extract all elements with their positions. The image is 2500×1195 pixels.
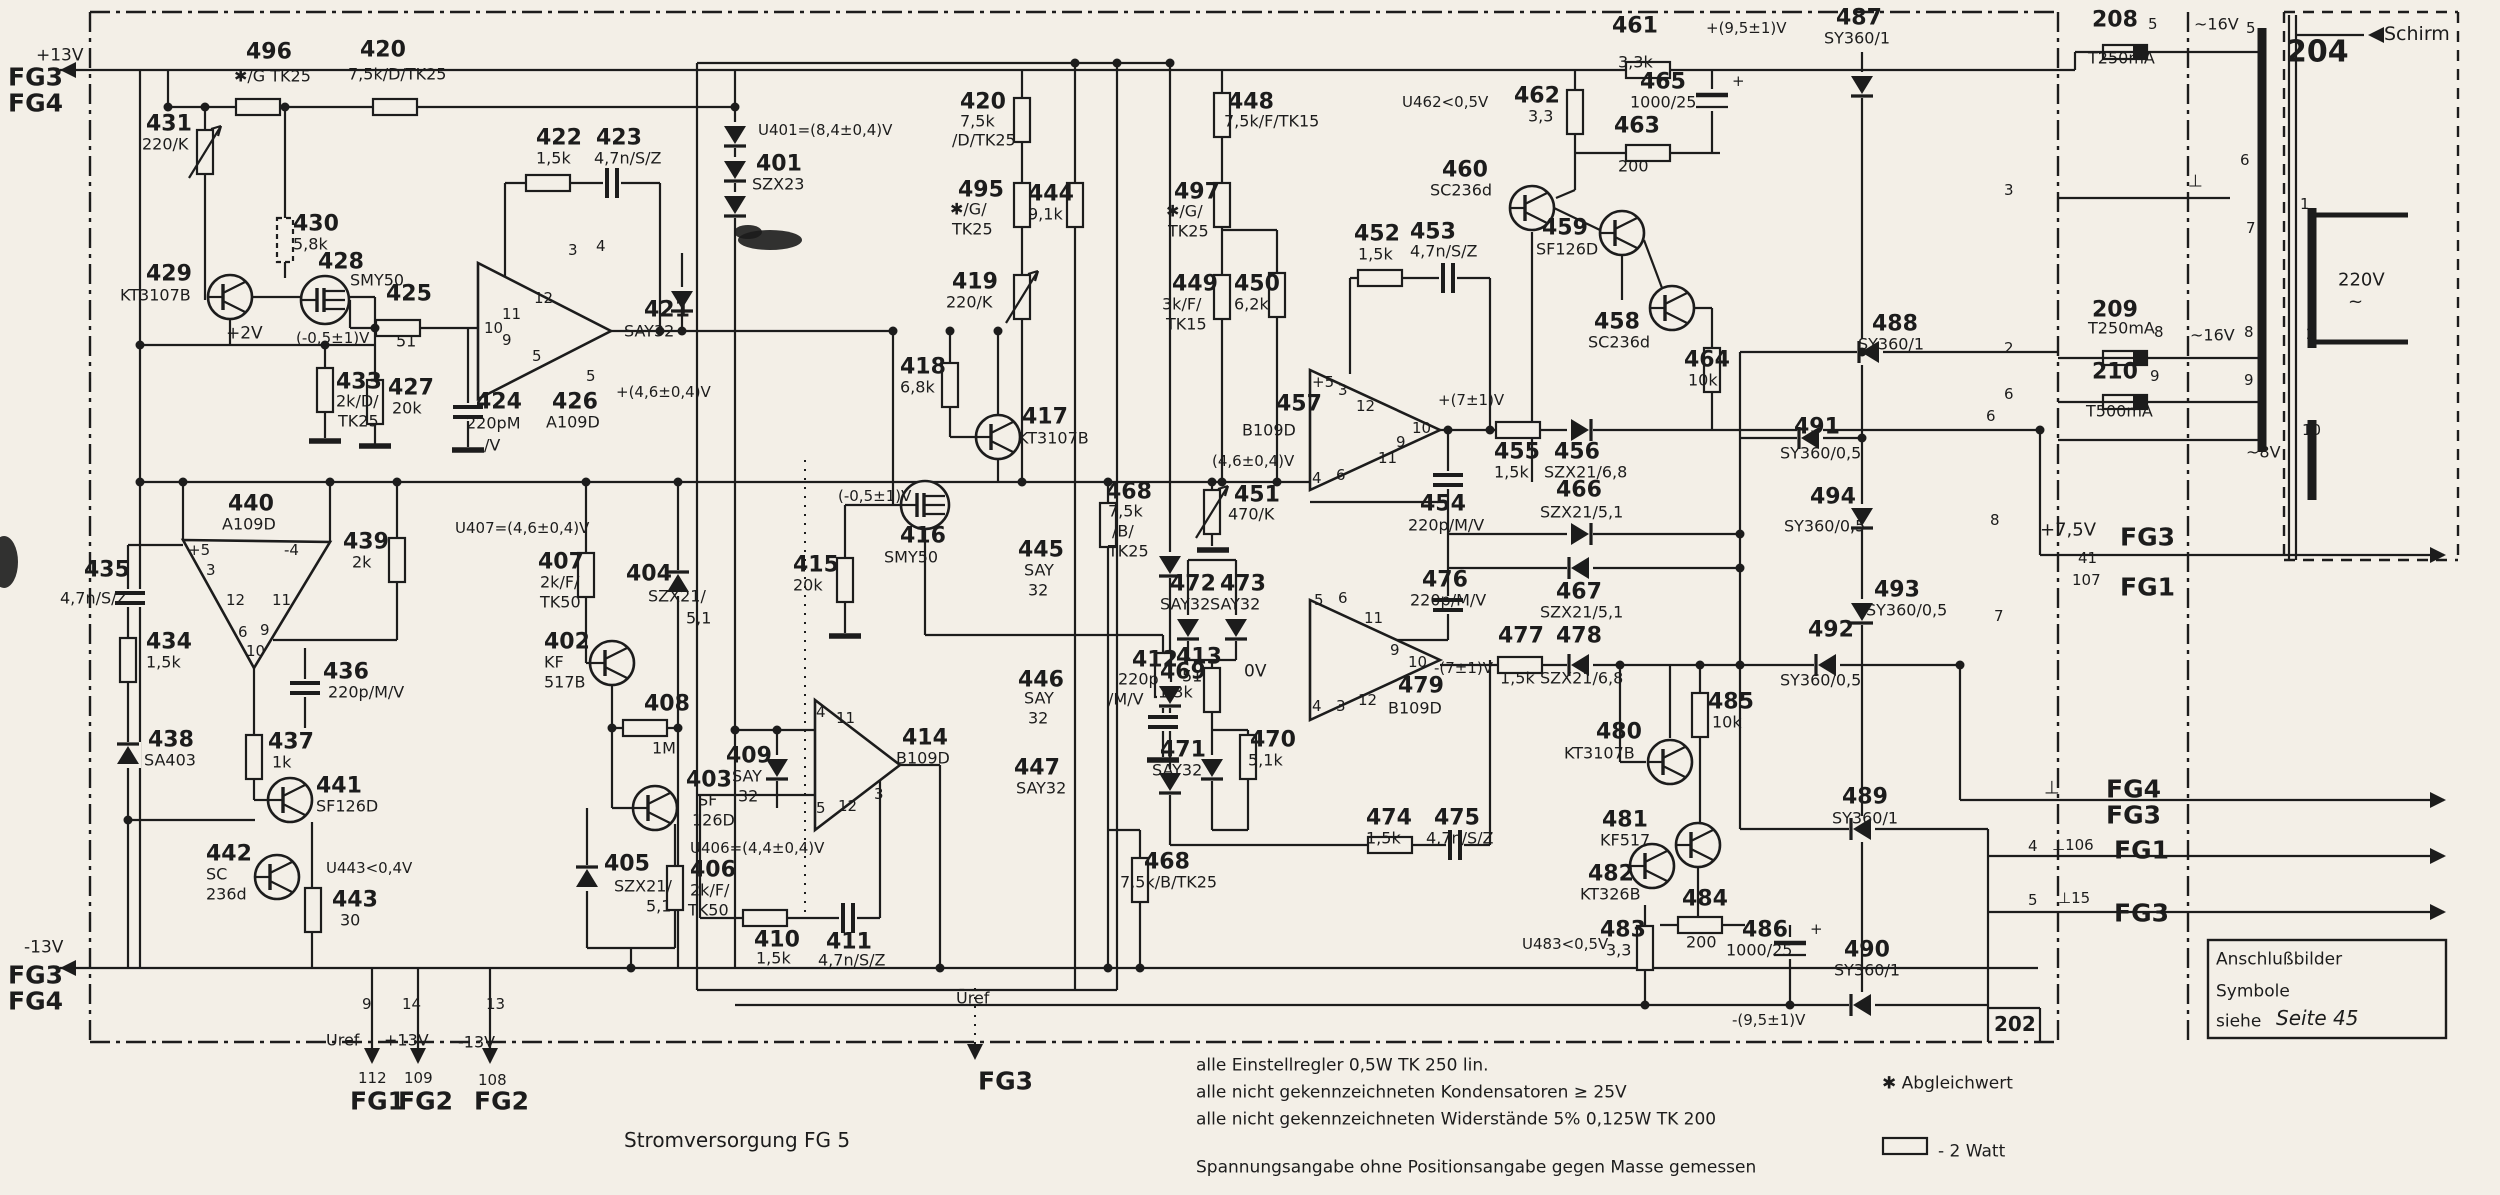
component-label: 404 (626, 562, 672, 587)
component-label: 414 (902, 726, 948, 751)
component-label: SAY (1024, 561, 1054, 580)
component-label: T250mA (2087, 319, 2155, 338)
component-label: 415 (793, 553, 839, 578)
opamp-symbol (815, 700, 900, 830)
junction-dot (1104, 964, 1113, 973)
component-label: 4,7n/S/Z (1426, 829, 1494, 848)
component-label: 4,7n/S/Z (818, 951, 886, 970)
component-label: 20k (392, 399, 422, 418)
component-label: 1,5k (756, 949, 791, 968)
component-label: 51 (396, 332, 416, 351)
component-label: -13V (458, 1033, 495, 1052)
component-label: SY360/1 (1834, 961, 1900, 980)
component-label: 1,5k (1366, 829, 1401, 848)
component-label: 7,5k/D/TK25 (348, 65, 446, 84)
component-label: FG3 (8, 960, 63, 989)
component-label: 200 (1618, 157, 1649, 176)
component-label: SY360/1 (1858, 335, 1924, 354)
resistor-symbol (389, 538, 405, 582)
component-label: 3,3 (1606, 941, 1631, 960)
component-label: 9 (1390, 641, 1400, 659)
component-label: 204 (2286, 35, 2349, 70)
component-label: 200 (1686, 933, 1717, 952)
component-label: KF (544, 653, 564, 672)
component-label: 489 (1842, 785, 1888, 810)
component-label: 424 (476, 390, 522, 415)
component-label: 476 (1422, 568, 1468, 593)
component-label: 10 (1408, 653, 1427, 671)
component-label: 422 (536, 126, 582, 151)
component-label: 107 (2072, 571, 2101, 589)
component-label: 220p/M/V (328, 683, 404, 702)
component-label: 13 (486, 995, 505, 1013)
junction-dot (674, 724, 683, 733)
component-label: 444 (1028, 182, 1074, 207)
component-label: 460 (1442, 158, 1488, 183)
junction-dot (164, 103, 173, 112)
component-label: 463 (1614, 114, 1660, 139)
component-label: -13V (24, 937, 64, 957)
component-label: 2k/D/ (336, 392, 379, 411)
component-label: FG2 (398, 1086, 453, 1115)
component-label: SY360/0,5 (1780, 671, 1861, 690)
junction-dot (1071, 59, 1080, 68)
component-label: KT3107B (120, 286, 191, 305)
component-label: 12 (1358, 691, 1377, 709)
component-label: Seite 45 (2276, 1006, 2359, 1030)
component-label: 417 (1022, 405, 1068, 430)
component-label: 458 (1594, 310, 1640, 335)
component-label: FG3 (8, 62, 63, 91)
component-label: U443<0,4V (326, 859, 413, 877)
component-label: FG4 (8, 986, 63, 1015)
component-label: 7,5k (960, 112, 995, 131)
component-label: 454 (1420, 492, 1466, 517)
component-label: 3 (874, 785, 884, 803)
component-label: FG1 (350, 1086, 405, 1115)
component-label: SF (698, 791, 717, 810)
component-label: 11 (836, 709, 855, 727)
component-label: 457 (1276, 392, 1322, 417)
component-label: 447 (1014, 756, 1060, 781)
junction-dot (773, 726, 782, 735)
component-label: 3 (1336, 697, 1346, 715)
component-label: SAY32 (1016, 779, 1066, 798)
resistor-symbol (305, 888, 321, 932)
component-label: 409 (726, 744, 772, 769)
junction-dot (1208, 478, 1217, 487)
component-label: 220/K (946, 293, 993, 312)
component-label: 10k (1688, 371, 1718, 390)
component-label: TK25 (1167, 222, 1209, 241)
component-label: 11 (502, 305, 521, 323)
junction-dot (1641, 1001, 1650, 1010)
component-label: 9 (2244, 371, 2254, 389)
component-label: 32 (738, 787, 758, 806)
resistor-symbol (246, 735, 262, 779)
component-label: 32 (1028, 581, 1048, 600)
resistor-symbol (120, 638, 136, 682)
component-label: 490 (1844, 938, 1890, 963)
component-label: 4 (1312, 697, 1322, 715)
component-label: 1000/25 (1726, 941, 1792, 960)
component-label: Anschlußbilder (2216, 949, 2342, 969)
component-label: ~16V (2194, 15, 2239, 34)
component-label: alle Einstellregler 0,5W TK 250 lin. (1196, 1055, 1489, 1075)
component-label: 6 (1336, 466, 1346, 484)
component-label: 427 (388, 376, 434, 401)
component-label: alle nicht gekennzeichneten Widerstände … (1196, 1109, 1716, 1129)
component-label: 9 (502, 331, 512, 349)
component-label: 7,5k/F/TK15 (1224, 112, 1319, 131)
component-label: 425 (386, 282, 432, 307)
component-label: ~16V (2190, 326, 2235, 345)
junction-dot (326, 478, 335, 487)
component-label: ⊥15 (2058, 889, 2090, 907)
component-label: 7 (2246, 219, 2256, 237)
resistor-symbol (1358, 270, 1402, 286)
resistor-symbol (1692, 693, 1708, 737)
component-label: /B/ (1112, 522, 1134, 541)
arrowhead (967, 1044, 983, 1060)
component-label: ⊥ (2188, 171, 2203, 191)
component-label: 10 (1412, 419, 1431, 437)
component-label: 7,5k/B/TK25 (1120, 873, 1217, 892)
junction-dot (393, 478, 402, 487)
component-label: siehe (2216, 1011, 2261, 1031)
component-label: 407 (538, 550, 584, 575)
component-label: TK25 (1107, 542, 1149, 561)
wire (1644, 240, 1662, 288)
junction-dot (1486, 426, 1495, 435)
component-label: +2V (226, 323, 263, 343)
component-label: 41 (2078, 549, 2097, 567)
component-label: 455 (1494, 440, 1540, 465)
component-label: 20k (793, 576, 823, 595)
component-label: FG3 (2120, 522, 2175, 551)
component-label: 4,7n/S/Z (60, 589, 128, 608)
schematic-canvas: +++13VFG3FG4-13VFG3FG4496✱/G TK254207,5k… (0, 0, 2500, 1195)
component-label: 2k/F/ (690, 881, 730, 900)
component-label: Stromversorgung FG 5 (624, 1128, 850, 1152)
junction-dot (179, 478, 188, 487)
component-label: KT3107B (1564, 744, 1635, 763)
component-label: +(7±1)V (1438, 391, 1505, 409)
component-label: 477 (1498, 624, 1544, 649)
component-label: 452 (1354, 222, 1400, 247)
component-label: Uref (326, 1031, 360, 1050)
component-label: 202 (1994, 1012, 2036, 1036)
component-label: 473 (1220, 572, 1266, 597)
component-label: U401=(8,4±0,4)V (758, 121, 893, 139)
plus-sign: + (1732, 72, 1745, 90)
component-label: 449 (1172, 272, 1218, 297)
resistor-symbol (373, 99, 417, 115)
component-label: 5,1 (646, 897, 671, 916)
component-label: 11 (272, 591, 291, 609)
component-label: 469 (1160, 660, 1206, 685)
component-label: 10 (484, 319, 503, 337)
component-label: 488 (1872, 312, 1918, 337)
component-label: 220p (1118, 670, 1159, 689)
component-label: /M/V (1108, 690, 1144, 709)
component-label: 1,5k (1358, 245, 1393, 264)
junction-dot (731, 103, 740, 112)
component-label: SC236d (1430, 181, 1492, 200)
component-label: SAY32 (1160, 595, 1210, 614)
component-label: 408 (644, 692, 690, 717)
resistor-symbol (1678, 917, 1722, 933)
component-label: 3 (1338, 381, 1348, 399)
junction-dot (1736, 661, 1745, 670)
component-label: 208 (2092, 8, 2138, 33)
component-label: 461 (1612, 14, 1658, 39)
component-label: SAY32 (1152, 761, 1202, 780)
component-label: +7,5V (2040, 519, 2097, 540)
component-label: 9 (362, 995, 372, 1013)
component-label: FG3 (2114, 898, 2169, 927)
junction-dot (608, 724, 617, 733)
component-label: ✱/G/ (1166, 202, 1203, 221)
component-label: ✱ Abgleichwert (1882, 1073, 2013, 1093)
component-label: KT326B (1580, 885, 1641, 904)
component-label: ~8V (2246, 443, 2281, 462)
component-label: 421 (644, 298, 690, 323)
component-label: SZX21/6,8 (1540, 669, 1623, 688)
component-label: U462<0,5V (1402, 93, 1489, 111)
component-label: 436 (323, 660, 369, 685)
component-label: B109D (1388, 699, 1442, 718)
component-label: 8 (1990, 511, 2000, 529)
component-label: 1 (2300, 195, 2310, 213)
component-label: 419 (952, 270, 998, 295)
resistor-symbol (526, 175, 570, 191)
resistor-symbol (1496, 422, 1540, 438)
component-label: +13V (384, 1031, 429, 1050)
junction-dot (136, 478, 145, 487)
component-label: SC (206, 865, 227, 884)
component-label: 426 (552, 390, 598, 415)
component-label: -(9,5±1)V (1732, 1011, 1806, 1029)
component-label: 5,1 (686, 609, 711, 628)
component-label: -4 (284, 541, 299, 559)
component-label: TK50 (539, 593, 581, 612)
component-label: 1M (652, 739, 676, 758)
component-label: 4 (2028, 837, 2038, 855)
component-label: 480 (1596, 720, 1642, 745)
component-label: 470 (1250, 728, 1296, 753)
arrowhead (364, 1048, 380, 1064)
component-label: 439 (343, 530, 389, 555)
component-label: 478 (1556, 624, 1602, 649)
component-label: B109D (896, 749, 950, 768)
component-label: 4,7n/S/Z (594, 149, 662, 168)
component-label: 6,8k (900, 378, 935, 397)
junction-dot (674, 478, 683, 487)
component-label: 14 (402, 995, 421, 1013)
component-label: 2k (352, 553, 372, 572)
component-label: Schirm (2384, 23, 2450, 45)
component-label: 474 (1366, 806, 1412, 831)
component-label: 481 (1602, 808, 1648, 833)
component-label: U483<0,5V (1522, 935, 1609, 953)
component-label: 1,5k (536, 149, 571, 168)
component-label: FG1 (2114, 835, 2169, 864)
junction-dot (2036, 426, 2045, 435)
component-label: - 2 Watt (1938, 1141, 2006, 1161)
component-label: B109D (1242, 421, 1296, 440)
component-label: 440 (228, 492, 274, 517)
component-label: Ūref (956, 989, 990, 1008)
component-label: 220V (2338, 269, 2385, 290)
component-label: SAY32 (624, 322, 674, 341)
resistor-symbol (623, 720, 667, 736)
component-label: (-0,5±1)V (296, 329, 370, 347)
component-label: 2 (2306, 325, 2316, 343)
junction-dot (1696, 661, 1705, 670)
component-label: SZX21/5,1 (1540, 503, 1623, 522)
component-label: (4,6±0,4)V (1212, 452, 1295, 470)
component-label: 7 (1994, 607, 2004, 625)
component-label: 10 (2302, 421, 2321, 439)
component-label: SY360/0,5 (1780, 444, 1861, 463)
component-label: 466 (1556, 478, 1602, 503)
arrowhead (2430, 792, 2446, 808)
component-label: SMY50 (884, 548, 938, 567)
resistor-symbol (1883, 1138, 1927, 1154)
component-label: +5 (1312, 373, 1334, 391)
component-label: SY360/1 (1824, 29, 1890, 48)
component-label: SAY (732, 767, 762, 786)
component-label: ✱/G TK25 (234, 67, 311, 86)
component-label: 434 (146, 630, 192, 655)
component-label: 442 (206, 842, 252, 867)
component-label: +(4,6±0,4)V (616, 383, 712, 401)
component-label: 482 (1588, 862, 1634, 887)
component-label: +5 (188, 541, 210, 559)
component-label: 5 (2028, 891, 2038, 909)
component-label: 8 (2244, 323, 2254, 341)
component-label: KT3107B (1018, 429, 1089, 448)
component-label: 9 (2150, 367, 2160, 385)
component-label: 9 (1396, 433, 1406, 451)
component-label: 12 (534, 289, 553, 307)
component-label: TK15 (1165, 315, 1207, 334)
component-label: 471 (1160, 738, 1206, 763)
resistor-symbol (236, 99, 280, 115)
component-label: (-0,5±1)V (838, 487, 912, 505)
scan-artifact (0, 536, 18, 588)
component-label: 10k (1712, 713, 1742, 732)
junction-dot (1166, 59, 1175, 68)
component-label: SZX21/ (648, 587, 706, 606)
resistor-symbol (1014, 98, 1030, 142)
junction-dot (1736, 564, 1745, 573)
component-label: 493 (1874, 578, 1920, 603)
component-label: 2 (2004, 339, 2014, 357)
component-label: 6,2k (1234, 295, 1269, 314)
component-label: 10 (246, 642, 265, 660)
junction-dot (1018, 478, 1027, 487)
junction-dot (1786, 1001, 1795, 1010)
component-label: 32 (1028, 709, 1048, 728)
component-label: 423 (596, 126, 642, 151)
component-label: 517B (544, 673, 586, 692)
scan-artifact (734, 225, 762, 239)
component-label: 11 (1378, 449, 1397, 467)
component-label: FG1 (2120, 572, 2175, 601)
component-label: 6 (1986, 407, 1996, 425)
component-label: 468 (1144, 850, 1190, 875)
component-label: 431 (146, 112, 192, 137)
component-label: 435 (84, 558, 130, 583)
resistor-symbol (743, 910, 787, 926)
component-label: 467 (1556, 580, 1602, 605)
component-label: TK25 (951, 220, 993, 239)
component-label: SZX21/5,1 (1540, 603, 1623, 622)
component-label: 486 (1742, 918, 1788, 943)
component-label: 485 (1708, 690, 1754, 715)
component-label: 5 (1314, 591, 1324, 609)
resistor-symbol (1567, 90, 1583, 134)
junction-dot (946, 327, 955, 336)
component-label: SF126D (1536, 240, 1598, 259)
component-label: 450 (1234, 272, 1280, 297)
component-label: 220/K (142, 135, 189, 154)
component-label: Spannungsangabe ohne Positionsangabe geg… (1196, 1157, 1756, 1177)
component-label: 484 (1682, 887, 1728, 912)
arrowhead (2430, 904, 2446, 920)
component-label: 3 (2004, 181, 2014, 199)
component-label: 12 (1356, 397, 1375, 415)
component-label: 416 (900, 524, 946, 549)
component-label: 30 (340, 911, 360, 930)
component-label: 401 (756, 152, 802, 177)
component-label: 429 (146, 262, 192, 287)
component-label: 4 (1312, 469, 1322, 487)
component-label: 479 (1398, 674, 1444, 699)
component-label: 1,5k (146, 653, 181, 672)
component-label: ⊥106 (2052, 836, 2094, 854)
component-label: A109D (546, 413, 600, 432)
component-label: 11 (1364, 609, 1383, 627)
plus-sign: + (1810, 920, 1823, 938)
junction-dot (1444, 426, 1453, 435)
component-label: SAY32 (1210, 595, 1260, 614)
component-label: 126D (692, 811, 735, 830)
arrowhead (410, 1048, 426, 1064)
component-label: Symbole (2216, 981, 2290, 1001)
component-label: ⊥ (2044, 777, 2060, 798)
component-label: 6 (2004, 385, 2014, 403)
junction-dot (371, 324, 380, 333)
component-label: 112 (358, 1069, 387, 1087)
component-label: 420 (360, 38, 406, 63)
component-label: /D/TK25 (952, 131, 1016, 150)
component-label: 109 (404, 1069, 433, 1087)
resistor-symbol (837, 558, 853, 602)
component-label: 2k/F/ (540, 573, 580, 592)
component-label: 12 (226, 591, 245, 609)
component-label: 6 (2240, 151, 2250, 169)
component-label: 445 (1018, 538, 1064, 563)
wire (1556, 190, 1575, 198)
component-label: +(9,5±1)V (1706, 19, 1787, 37)
component-label: 403 (686, 768, 732, 793)
junction-dot (1736, 530, 1745, 539)
junction-dot (1956, 661, 1965, 670)
component-label: FG3 (978, 1066, 1033, 1095)
